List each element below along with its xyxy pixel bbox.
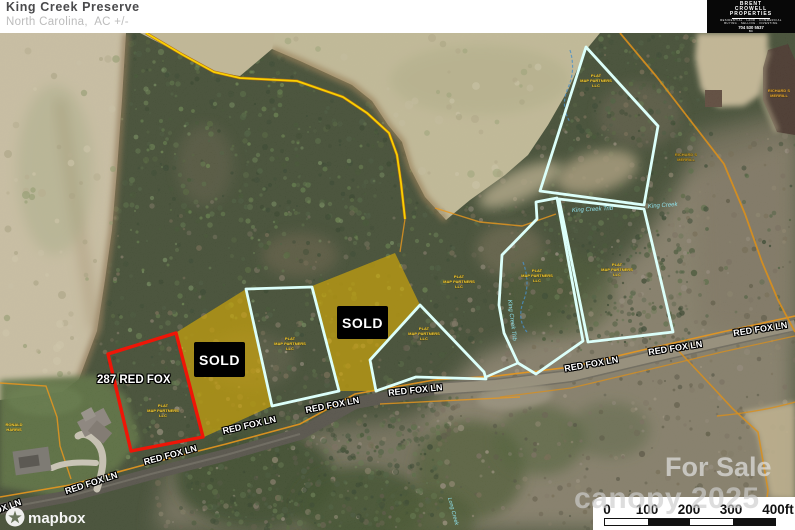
svg-text:LLC: LLC: [613, 272, 621, 277]
svg-text:LLC: LLC: [533, 278, 541, 283]
svg-text:MERRILL: MERRILL: [770, 93, 788, 98]
svg-text:LLC: LLC: [286, 346, 294, 351]
svg-text:LLC: LLC: [420, 336, 428, 341]
svg-text:mapbox: mapbox: [28, 510, 86, 527]
svg-text:LLC: LLC: [159, 413, 167, 418]
svg-text:LLC: LLC: [592, 83, 600, 88]
svg-text:MERRILL: MERRILL: [677, 157, 695, 162]
svg-text:LLC: LLC: [455, 284, 463, 289]
svg-text:HARRIS: HARRIS: [6, 427, 22, 432]
